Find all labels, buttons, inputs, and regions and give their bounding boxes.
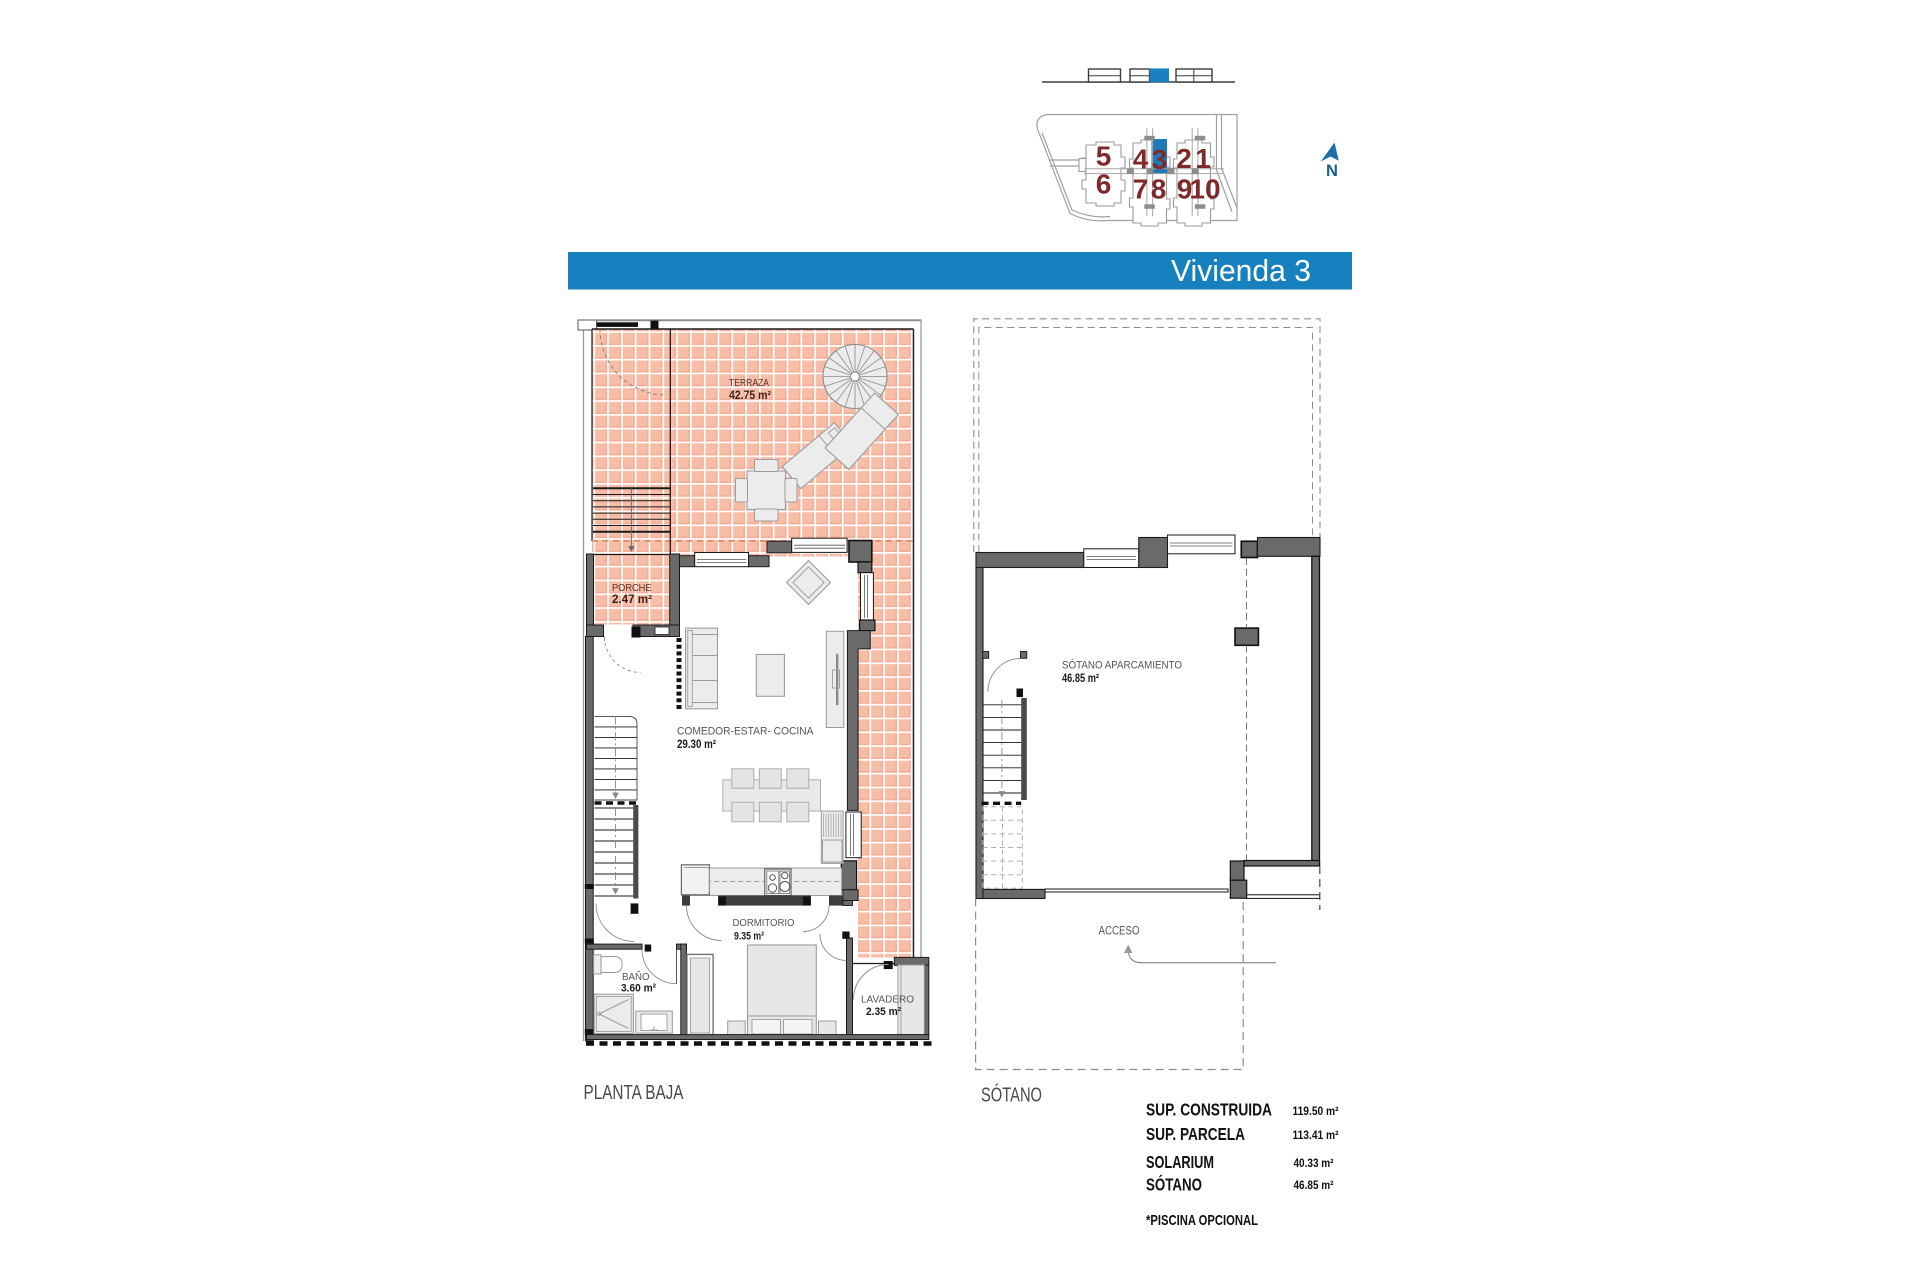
- svg-text:*PISCINA OPCIONAL: *PISCINA OPCIONAL: [1146, 1212, 1258, 1229]
- svg-text:46.85 m²: 46.85 m²: [1062, 671, 1099, 685]
- svg-text:TERRAZA: TERRAZA: [729, 377, 769, 389]
- svg-text:8: 8: [1151, 174, 1167, 205]
- svg-text:2.47 m²: 2.47 m²: [612, 594, 652, 606]
- svg-text:2.35 m²: 2.35 m²: [866, 1006, 901, 1018]
- svg-text:DORMITORIO: DORMITORIO: [733, 917, 795, 929]
- svg-text:LAVADERO: LAVADERO: [861, 994, 914, 1006]
- svg-text:BAÑO: BAÑO: [622, 970, 650, 983]
- svg-text:46.85 m²: 46.85 m²: [1294, 1178, 1334, 1192]
- svg-text:COMEDOR-ESTAR- COCINA: COMEDOR-ESTAR- COCINA: [677, 726, 814, 738]
- svg-text:Vivienda 3: Vivienda 3: [1171, 254, 1311, 288]
- svg-text:2: 2: [1176, 143, 1192, 174]
- svg-text:N: N: [1326, 162, 1338, 180]
- svg-text:SÓTANO: SÓTANO: [981, 1084, 1042, 1107]
- svg-text:10: 10: [1189, 174, 1220, 205]
- svg-text:9.35 m²: 9.35 m²: [734, 931, 764, 943]
- svg-text:29.30 m²: 29.30 m²: [677, 737, 716, 751]
- svg-text:42.75 m²: 42.75 m²: [729, 390, 771, 402]
- svg-text:SOLARIUM: SOLARIUM: [1146, 1152, 1214, 1172]
- svg-text:SUP. PARCELA: SUP. PARCELA: [1146, 1124, 1245, 1144]
- svg-text:1: 1: [1195, 143, 1211, 174]
- svg-text:5: 5: [1096, 141, 1112, 172]
- svg-text:3: 3: [1152, 144, 1168, 175]
- svg-text:113.41 m²: 113.41 m²: [1293, 1128, 1339, 1142]
- svg-text:ACCESO: ACCESO: [1099, 926, 1140, 938]
- svg-text:3.60 m²: 3.60 m²: [621, 983, 656, 995]
- svg-text:4: 4: [1133, 144, 1149, 175]
- svg-text:PORCHE: PORCHE: [612, 582, 652, 594]
- svg-text:SUP. CONSTRUIDA: SUP. CONSTRUIDA: [1146, 1100, 1272, 1120]
- svg-text:SÓTANO APARCAMIENTO: SÓTANO APARCAMIENTO: [1062, 659, 1182, 672]
- svg-text:PLANTA BAJA: PLANTA BAJA: [584, 1081, 684, 1104]
- svg-text:119.50 m²: 119.50 m²: [1293, 1104, 1339, 1118]
- svg-text:40.33 m²: 40.33 m²: [1294, 1156, 1334, 1170]
- svg-text:7: 7: [1133, 174, 1149, 205]
- svg-text:6: 6: [1096, 169, 1112, 200]
- svg-text:SÓTANO: SÓTANO: [1146, 1174, 1202, 1195]
